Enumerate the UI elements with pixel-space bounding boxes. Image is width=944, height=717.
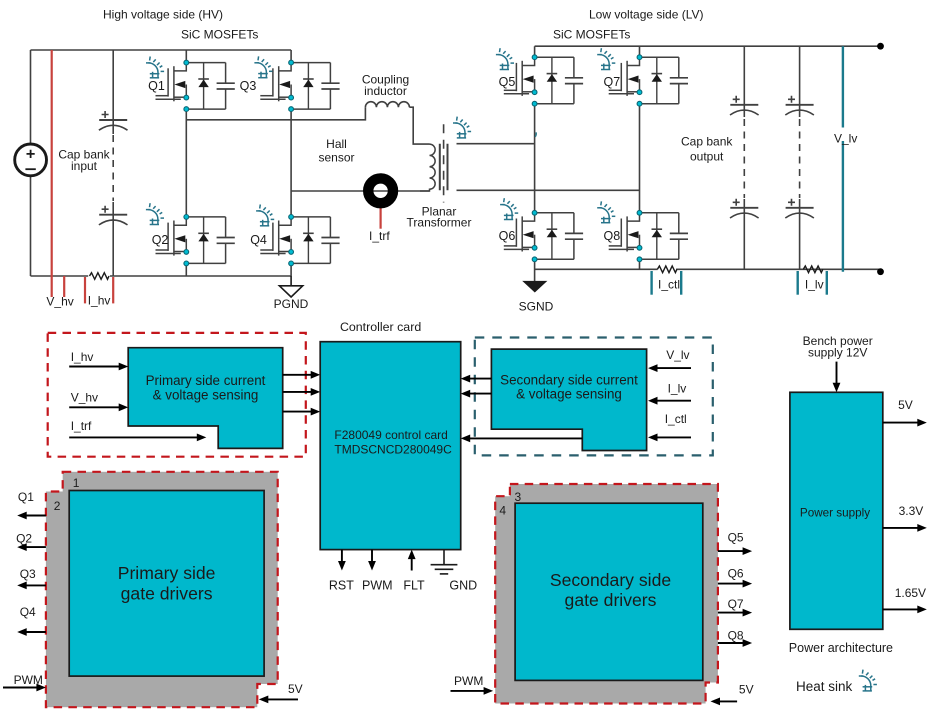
svg-text:Q7: Q7 — [604, 75, 621, 89]
svg-text:Primary side current: Primary side current — [146, 373, 266, 388]
svg-text:Q5: Q5 — [728, 531, 744, 545]
svg-text:PWM: PWM — [362, 579, 393, 593]
svg-text:Q4: Q4 — [20, 605, 36, 619]
svg-text:GND: GND — [449, 579, 477, 593]
svg-text:I_ctl: I_ctl — [665, 412, 687, 426]
svg-text:Q6: Q6 — [728, 567, 744, 581]
svg-text:V_hv: V_hv — [71, 391, 98, 405]
svg-text:Q5: Q5 — [499, 75, 516, 89]
svg-text:F280049 control card: F280049 control card — [334, 428, 447, 442]
svg-text:4: 4 — [499, 504, 506, 518]
svg-text:3.3V: 3.3V — [899, 504, 924, 518]
svg-text:SGND: SGND — [519, 300, 554, 314]
svg-text:1.65V: 1.65V — [895, 586, 926, 600]
svg-text:V_lv: V_lv — [834, 132, 857, 146]
svg-text:I_trf: I_trf — [71, 419, 92, 433]
svg-text:Cap bank: Cap bank — [681, 135, 733, 149]
svg-text:Q2: Q2 — [152, 233, 169, 247]
svg-text:SiC MOSFETs: SiC MOSFETs — [553, 28, 630, 42]
svg-text:5V: 5V — [739, 683, 754, 697]
svg-text:& voltage sensing: & voltage sensing — [153, 388, 259, 403]
svg-text:I_lv: I_lv — [805, 278, 824, 292]
svg-text:output: output — [690, 150, 724, 164]
svg-text:Q1: Q1 — [18, 490, 34, 504]
svg-text:PWM: PWM — [14, 673, 43, 687]
svg-text:Low voltage side (LV): Low voltage side (LV) — [589, 8, 704, 22]
svg-text:Primary side: Primary side — [118, 563, 216, 583]
svg-text:RST: RST — [329, 579, 354, 593]
svg-text:sensor: sensor — [318, 151, 354, 165]
svg-text:Heat sink: Heat sink — [796, 679, 853, 694]
svg-text:V_hv: V_hv — [46, 295, 73, 309]
svg-text:& voltage sensing: & voltage sensing — [516, 386, 622, 401]
svg-text:I_ctl: I_ctl — [658, 278, 680, 292]
svg-text:5V: 5V — [288, 682, 303, 696]
svg-text:PGND: PGND — [274, 297, 309, 311]
svg-text:SiC MOSFETs: SiC MOSFETs — [181, 28, 258, 42]
svg-text:Q3: Q3 — [240, 79, 257, 93]
svg-text:Q8: Q8 — [728, 629, 744, 643]
svg-text:3: 3 — [515, 490, 522, 504]
svg-text:Secondary side: Secondary side — [550, 570, 671, 590]
svg-text:Q4: Q4 — [250, 233, 267, 247]
svg-text:Hall: Hall — [326, 137, 347, 151]
svg-text:input: input — [71, 159, 98, 173]
svg-text:gate drivers: gate drivers — [121, 584, 213, 604]
svg-text:Q7: Q7 — [728, 597, 744, 611]
svg-text:Controller card: Controller card — [340, 320, 421, 334]
svg-text:supply 12V: supply 12V — [808, 346, 867, 360]
svg-text:I_hv: I_hv — [88, 294, 111, 308]
svg-text:Q8: Q8 — [604, 229, 621, 243]
svg-text:2: 2 — [54, 499, 61, 513]
svg-text:I_lv: I_lv — [668, 381, 687, 395]
svg-text:High voltage side (HV): High voltage side (HV) — [103, 8, 223, 22]
svg-text:5V: 5V — [898, 398, 913, 412]
svg-text:Secondary side current: Secondary side current — [500, 372, 638, 387]
svg-text:I_hv: I_hv — [71, 350, 94, 364]
svg-text:Q6: Q6 — [499, 229, 516, 243]
svg-text:PWM: PWM — [454, 674, 483, 688]
svg-text:Q3: Q3 — [20, 567, 36, 581]
svg-text:inductor: inductor — [364, 84, 407, 98]
svg-text:FLT: FLT — [403, 579, 425, 593]
svg-text:Q1: Q1 — [148, 79, 165, 93]
svg-text:Transformer: Transformer — [407, 216, 472, 230]
svg-text:gate drivers: gate drivers — [565, 590, 657, 610]
svg-text:Power architecture: Power architecture — [789, 641, 893, 655]
svg-text:V_lv: V_lv — [666, 348, 689, 362]
svg-text:TMDSCNCD280049C: TMDSCNCD280049C — [334, 443, 452, 457]
svg-text:Q2: Q2 — [16, 531, 32, 545]
svg-text:I_trf: I_trf — [369, 229, 390, 243]
svg-text:Power supply: Power supply — [800, 507, 870, 520]
svg-text:1: 1 — [73, 476, 80, 490]
